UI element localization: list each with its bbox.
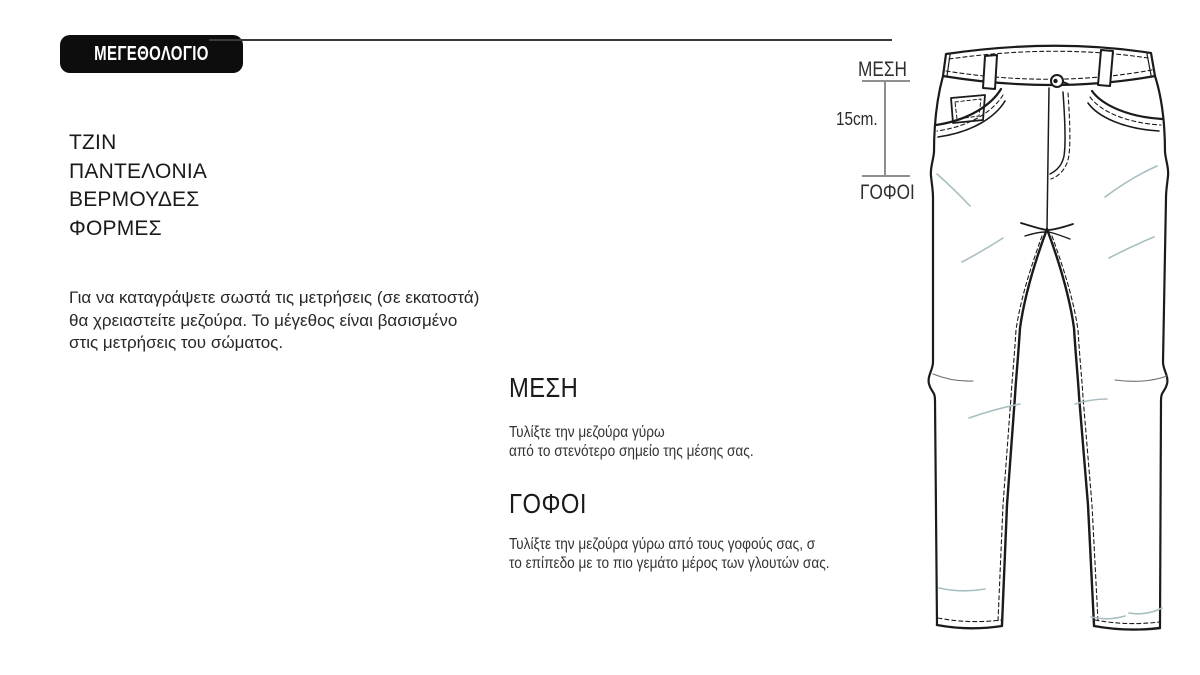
category-jeans: ΤΖΙΝ xyxy=(69,129,207,158)
hips-diagram-label: ΓΟΦΟΙ xyxy=(860,181,915,205)
product-category-list: ΤΖΙΝ ΠΑΝΤΕΛΟΝΙΑ ΒΕΡΜΟΥΔΕΣ ΦΟΡΜΕΣ xyxy=(69,129,207,243)
hips-text-line: Τυλίξτε την μεζούρα γύρω από τους γοφούς… xyxy=(509,536,830,555)
measurement-tick-top xyxy=(862,80,910,82)
intro-paragraph: Για να καταγράψετε σωστά τις μετρήσεις (… xyxy=(69,287,479,355)
hips-section-text: Τυλίξτε την μεζούρα γύρω από τους γοφούς… xyxy=(509,536,830,573)
intro-line: θα χρειαστείτε μεζούρα. Το μέγεθος είναι… xyxy=(69,310,479,333)
size-guide-badge-label: ΜΕΓΕΘΟΛΟΓΙΟ xyxy=(94,43,209,66)
waist-text-line: Τυλίξτε την μεζούρα γύρω xyxy=(509,424,754,443)
measurement-tick-bottom xyxy=(862,175,910,177)
jeans-technical-drawing xyxy=(925,40,1195,640)
size-guide-page: ΜΕΓΕΘΟΛΟΓΙΟ ΤΖΙΝ ΠΑΝΤΕΛΟΝΙΑ ΒΕΡΜΟΥΔΕΣ ΦΟ… xyxy=(0,0,1200,675)
distance-label: 15cm. xyxy=(836,109,878,130)
top-divider xyxy=(209,39,892,41)
category-sweatpants: ΦΟΡΜΕΣ xyxy=(69,215,207,244)
intro-line: στις μετρήσεις του σώματος. xyxy=(69,332,479,355)
intro-line: Για να καταγράψετε σωστά τις μετρήσεις (… xyxy=(69,287,479,310)
category-trousers: ΠΑΝΤΕΛΟΝΙΑ xyxy=(69,158,207,187)
category-bermudas: ΒΕΡΜΟΥΔΕΣ xyxy=(69,186,207,215)
hips-text-line: το επίπεδο με το πιο γεμάτο μέρος των γλ… xyxy=(509,555,830,574)
waist-diagram-label: ΜΕΣΗ xyxy=(858,58,907,82)
waist-section-text: Τυλίξτε την μεζούρα γύρω από το στενότερ… xyxy=(509,424,754,461)
hips-section-heading: ΓΟΦΟΙ xyxy=(509,488,587,520)
waist-text-line: από το στενότερο σημείο της μέσης σας. xyxy=(509,443,754,462)
measurement-bracket-line xyxy=(884,80,886,176)
waist-section-heading: ΜΕΣΗ xyxy=(509,372,578,404)
